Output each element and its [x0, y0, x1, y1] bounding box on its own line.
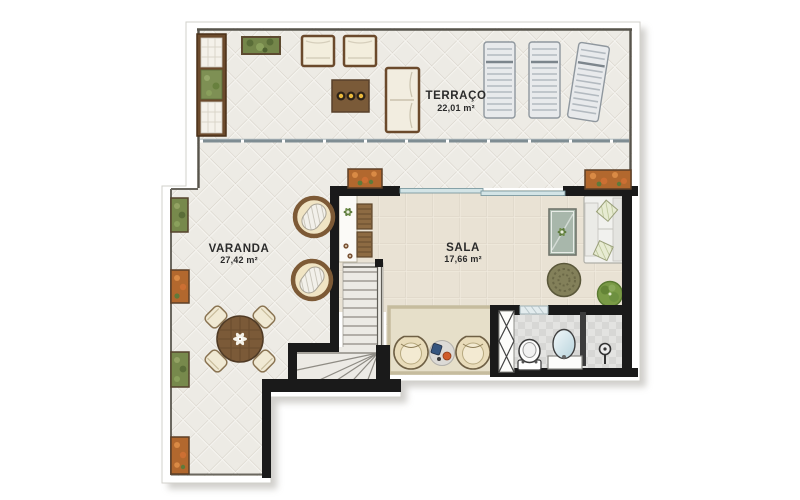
l-shaped-sofa [584, 196, 624, 263]
bathroom-window [520, 306, 548, 314]
round-side-table [430, 341, 455, 366]
varanda-label: VARANDA [209, 243, 270, 255]
terrace-planter-box [242, 37, 280, 54]
tulip-armchair [394, 337, 428, 369]
sala-area: 17,66 m² [444, 254, 482, 264]
terrace-sofa [386, 68, 419, 132]
tulip-armchair [456, 337, 490, 369]
storage-bench-unit [197, 34, 226, 136]
planter-orange [585, 170, 631, 189]
floor-plan-canvas: TERRAÇO 22,01 m² VARANDA 27,42 m² SALA 1… [0, 0, 800, 500]
terrace-armchair [344, 36, 376, 66]
glass-side-table [549, 209, 576, 255]
coffee-table-with-candles [332, 80, 369, 112]
floor-plan: TERRAÇO 22,01 m² VARANDA 27,42 m² SALA 1… [0, 0, 800, 500]
sun-loungers [484, 42, 610, 122]
varanda-area: 27,42 m² [220, 255, 258, 265]
wall-planter-green [171, 352, 189, 387]
bathroom-folding-door [499, 311, 514, 372]
terrace-armchair [302, 36, 334, 66]
planter-orange [348, 169, 382, 188]
toilet [518, 340, 541, 371]
terraco-area: 22,01 m² [437, 103, 475, 113]
egg-chair [293, 261, 331, 299]
sala-label: SALA [446, 242, 480, 254]
terraco-label: TERRAÇO [425, 90, 486, 102]
console-with-stools [339, 194, 372, 262]
wall-planter-orange [171, 437, 189, 474]
glass-railing [200, 139, 629, 141]
wall-planter-orange [171, 270, 189, 303]
egg-chair [295, 198, 333, 236]
rattan-pouf [548, 264, 581, 297]
wall-planter-green [171, 198, 188, 232]
potted-plant [598, 282, 623, 307]
